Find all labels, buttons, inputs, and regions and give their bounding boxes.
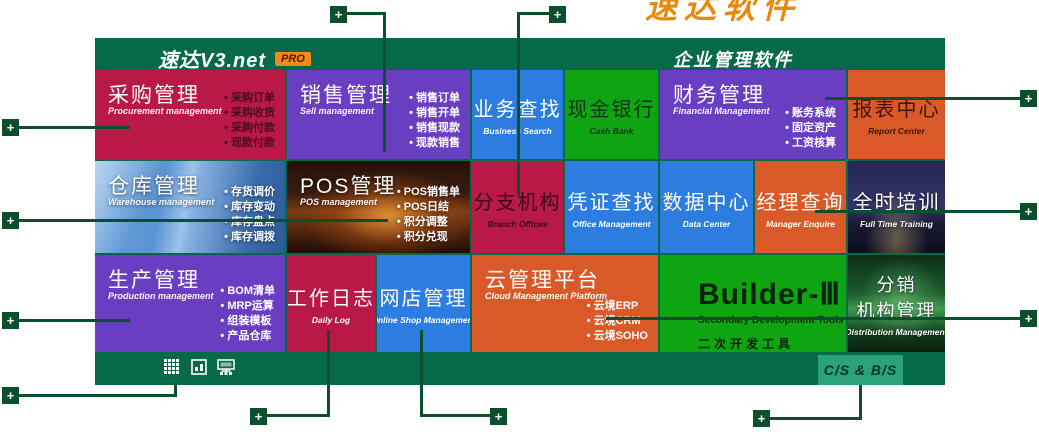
tile-report-center[interactable]: 报表中心 Report Center [848, 70, 945, 159]
tile-subtitle: Data Center [683, 219, 731, 229]
connector-line [327, 330, 330, 417]
tile-manager-enquire[interactable]: 经理查询 Manager Enquire [755, 161, 846, 253]
tile-sell[interactable]: 销售管理 Sell management 销售订单 销售开单 销售现款 现款销售 [287, 70, 470, 159]
bullet-item: MRP运算 [220, 299, 275, 314]
bullet-item: 库存盘点 [224, 215, 275, 230]
tile-subtitle: Cash Bank [590, 126, 634, 136]
connector-line [517, 12, 549, 15]
tile-subtitle: Report Center [868, 126, 925, 136]
tile-online-shop[interactable]: 网店管理 Online Shop Management [377, 255, 470, 352]
connector-plus-box[interactable]: + [250, 408, 267, 425]
bullet-item: 产品仓库 [220, 329, 275, 344]
tile-warehouse[interactable]: 仓库管理 Warehouse management 存货调价 库存变动 库存盘点… [95, 161, 285, 253]
tile-subtitle-cn: 二次开发工具 [698, 335, 794, 352]
connector-line [347, 12, 384, 15]
tile-voucher-search[interactable]: 凭证查找 Office Management [565, 161, 658, 253]
pro-badge: PRO [275, 52, 311, 66]
connector-line [606, 317, 1020, 320]
connector-line [174, 384, 177, 397]
tile-title: 现金银行 [568, 93, 656, 122]
bullet-item: 库存变动 [224, 200, 275, 215]
bullet-item: 积分调整 [397, 215, 460, 230]
tile-subtitle: Warehouse management [108, 197, 214, 207]
bullet-item: 账务系统 [785, 106, 836, 121]
bullet-item: 现款销售 [409, 136, 460, 151]
connector-line [517, 12, 520, 196]
connector-plus-box[interactable]: + [549, 6, 566, 23]
bullet-item: 库存调拨 [224, 230, 275, 245]
tile-subtitle: Financial Management [673, 106, 770, 116]
tile-bullet-list: BOM清单 MRP运算 组装模板 产品仓库 [220, 284, 275, 344]
connector-plus-box[interactable]: + [2, 119, 19, 136]
clipped-watermark-text: 速达软件 [645, 0, 801, 28]
cs-bs-badge: C/S & B/S [818, 355, 903, 385]
bullet-item: 工资核算 [785, 136, 836, 151]
tile-procurement[interactable]: 采购管理 Procurement management 采购订单 采购收货 采购… [95, 70, 285, 159]
grid-view-icon[interactable] [163, 358, 181, 375]
connector-plus-box[interactable]: + [330, 6, 347, 23]
tile-subtitle: Production management [108, 291, 214, 301]
bullet-item: 固定资产 [785, 121, 836, 136]
tile-title: 财务管理 [673, 79, 765, 109]
tile-subtitle: Branch Offices [487, 219, 547, 229]
bullet-item: 云境ERP [587, 299, 648, 314]
connector-plus-box[interactable]: + [1020, 90, 1037, 107]
brand-logo-text: 速达V3.net [158, 44, 266, 73]
tile-title: 仓库管理 [108, 170, 200, 200]
tile-title-line1: 分销 [877, 271, 917, 297]
page: { "header": { "brand": "速达V3.net", "bran… [0, 0, 1039, 447]
connector-line [383, 12, 386, 152]
tile-subtitle: Daily Log [312, 315, 350, 325]
connector-line [267, 414, 330, 417]
tile-subtitle: Procurement management [108, 106, 222, 116]
tile-subtitle: Online Shop Management [377, 315, 470, 325]
header-brand: 速达V3.net PRO [158, 44, 311, 73]
tile-subtitle: Manager Enquire [766, 219, 835, 229]
connector-line [421, 414, 490, 417]
tile-subtitle: Full Time Training [860, 219, 933, 229]
connector-plus-box[interactable]: + [2, 312, 19, 329]
tile-production[interactable]: 生产管理 Production management BOM清单 MRP运算 组… [95, 255, 285, 352]
tile-bullet-list: 云境ERP 云境CRM 云境SOHO [587, 299, 648, 344]
tile-data-center[interactable]: 数据中心 Data Center [660, 161, 753, 253]
bullet-item: 销售订单 [409, 91, 460, 106]
tile-cloud-platform[interactable]: 云管理平台 Cloud Management Platform 云境ERP 云境… [472, 255, 658, 352]
bullet-item: 组装模板 [220, 314, 275, 329]
bullet-item: POS销售单 [397, 185, 460, 200]
network-monitor-icon[interactable] [217, 358, 235, 375]
bullet-item: 采购订单 [224, 91, 275, 106]
connector-plus-box[interactable]: + [490, 408, 507, 425]
tile-bullet-list: POS销售单 POS日结 积分调整 积分兑现 [397, 185, 460, 245]
tile-title: Builder-Ⅲ [698, 277, 841, 312]
tile-title: 网店管理 [380, 282, 468, 311]
report-window-icon[interactable] [190, 358, 208, 375]
tile-full-time-training[interactable]: 全时培训 Full Time Training [848, 161, 945, 253]
bullet-item: 云境SOHO [587, 329, 648, 344]
tile-title: 销售管理 [300, 79, 392, 109]
connector-plus-box[interactable]: + [2, 212, 19, 229]
tile-title: 工作日志 [287, 282, 375, 311]
connector-line [770, 417, 862, 420]
connector-plus-box[interactable]: + [753, 410, 770, 427]
tile-subtitle: Sell management [300, 106, 374, 116]
bullet-item: POS日结 [397, 200, 460, 215]
bullet-item: 采购收货 [224, 106, 275, 121]
tile-subtitle: Office Management [572, 219, 650, 229]
product-title: 企业管理软件 [673, 46, 793, 72]
tile-title: 采购管理 [108, 79, 200, 109]
connector-line [815, 210, 1020, 213]
tile-cash-bank[interactable]: 现金银行 Cash Bank [565, 70, 658, 159]
tile-subtitle: POS management [300, 197, 377, 207]
tile-title: 云管理平台 [485, 264, 600, 294]
tile-pos[interactable]: POS管理 POS management POS销售单 POS日结 积分调整 积… [287, 161, 470, 253]
bullet-item: 采购付款 [224, 121, 275, 136]
connector-line [19, 126, 130, 129]
tile-bullet-list: 销售订单 销售开单 销售现款 现款销售 [409, 91, 460, 151]
connector-line [19, 319, 130, 322]
bullet-item: BOM清单 [220, 284, 275, 299]
bullet-item: 销售开单 [409, 106, 460, 121]
bullet-item: 现款付款 [224, 136, 275, 151]
connector-plus-box[interactable]: + [2, 387, 19, 404]
tile-builder[interactable]: Builder-Ⅲ Secondary Development Tools 二次… [660, 255, 846, 352]
tile-bullet-list: 账务系统 固定资产 工资核算 [785, 106, 836, 151]
tile-distribution[interactable]: 分销 机构管理 Distribution Management [848, 255, 945, 352]
tile-title: 数据中心 [663, 186, 751, 215]
connector-line [859, 385, 862, 419]
connector-plus-box[interactable]: + [1020, 310, 1037, 327]
bottom-toolbar [163, 358, 235, 375]
tile-title: 凭证查找 [568, 186, 656, 215]
tile-bullet-list: 采购订单 采购收货 采购付款 现款付款 [224, 91, 275, 151]
connector-line [19, 394, 177, 397]
tile-bullet-list: 存货调价 库存变动 库存盘点 库存调拨 [224, 185, 275, 245]
tile-subtitle: Distribution Management [848, 327, 945, 337]
tile-title: POS管理 [300, 170, 396, 200]
connector-line [825, 97, 1020, 100]
tile-daily-log[interactable]: 工作日志 Daily Log [287, 255, 375, 352]
bullet-item: 积分兑现 [397, 230, 460, 245]
connector-plus-box[interactable]: + [1020, 203, 1037, 220]
connector-line [420, 330, 423, 417]
tile-title: 生产管理 [108, 264, 200, 294]
connector-line [19, 219, 388, 222]
bullet-item: 存货调价 [224, 185, 275, 200]
bullet-item: 销售现款 [409, 121, 460, 136]
tile-financial[interactable]: 财务管理 Financial Management 账务系统 固定资产 工资核算 [660, 70, 846, 159]
